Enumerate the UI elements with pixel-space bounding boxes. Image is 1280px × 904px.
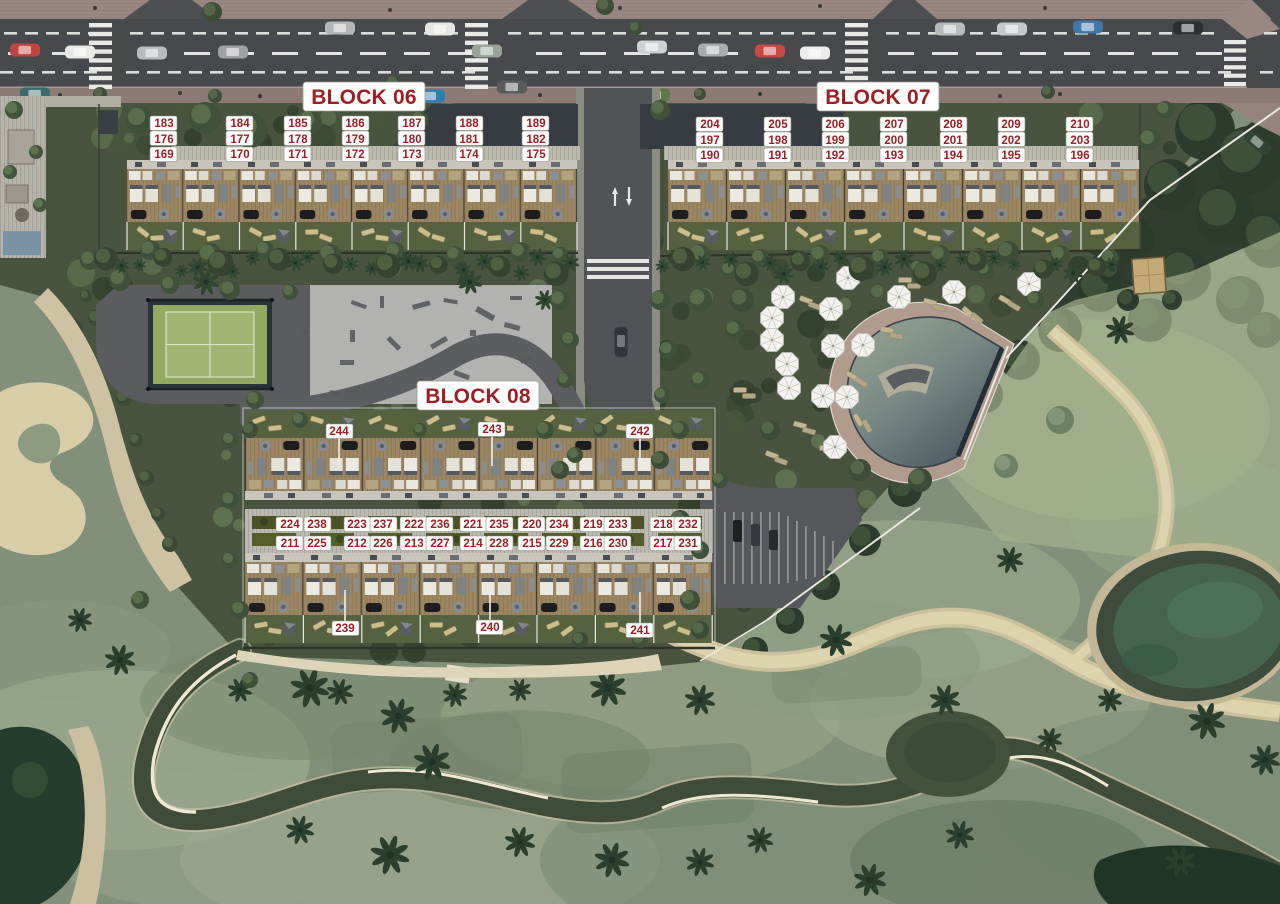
svg-text:193: 193 — [884, 150, 903, 162]
svg-text:186: 186 — [345, 118, 364, 130]
svg-text:241: 241 — [630, 625, 650, 637]
svg-text:221: 221 — [463, 519, 483, 531]
svg-text:243: 243 — [482, 424, 501, 436]
svg-text:206: 206 — [825, 119, 844, 131]
svg-text:214: 214 — [463, 538, 483, 550]
svg-text:220: 220 — [522, 519, 541, 531]
svg-text:207: 207 — [884, 119, 903, 131]
svg-text:223: 223 — [347, 519, 366, 531]
svg-text:235: 235 — [489, 519, 509, 531]
svg-text:242: 242 — [630, 426, 649, 438]
svg-text:196: 196 — [1070, 150, 1089, 162]
svg-text:211: 211 — [281, 538, 300, 550]
svg-text:233: 233 — [608, 519, 627, 531]
svg-text:194: 194 — [943, 150, 963, 162]
svg-text:216: 216 — [583, 538, 602, 550]
svg-text:190: 190 — [700, 150, 719, 162]
svg-text:BLOCK 08: BLOCK 08 — [425, 385, 531, 408]
svg-text:218: 218 — [653, 519, 673, 531]
svg-text:197: 197 — [700, 135, 719, 147]
svg-text:240: 240 — [480, 622, 499, 634]
svg-text:239: 239 — [335, 623, 354, 635]
svg-text:201: 201 — [943, 135, 963, 147]
svg-text:189: 189 — [526, 118, 545, 130]
svg-text:183: 183 — [154, 118, 173, 130]
svg-text:173: 173 — [402, 149, 421, 161]
svg-text:234: 234 — [549, 519, 569, 531]
svg-text:198: 198 — [768, 135, 788, 147]
svg-text:212: 212 — [347, 538, 366, 550]
svg-text:217: 217 — [653, 538, 672, 550]
svg-text:178: 178 — [288, 134, 308, 146]
svg-text:176: 176 — [154, 134, 173, 146]
svg-text:185: 185 — [288, 118, 308, 130]
svg-text:177: 177 — [230, 134, 249, 146]
svg-text:228: 228 — [489, 538, 509, 550]
svg-text:200: 200 — [884, 135, 903, 147]
svg-text:230: 230 — [608, 538, 627, 550]
svg-text:172: 172 — [345, 149, 364, 161]
svg-text:BLOCK 07: BLOCK 07 — [825, 86, 930, 109]
svg-text:237: 237 — [373, 519, 392, 531]
svg-text:236: 236 — [430, 519, 449, 531]
svg-text:209: 209 — [1001, 119, 1020, 131]
svg-text:191: 191 — [768, 150, 788, 162]
svg-text:180: 180 — [402, 134, 421, 146]
svg-text:226: 226 — [373, 538, 392, 550]
svg-text:219: 219 — [583, 519, 602, 531]
svg-text:199: 199 — [825, 135, 844, 147]
svg-text:192: 192 — [825, 150, 844, 162]
svg-text:215: 215 — [522, 538, 542, 550]
svg-text:225: 225 — [307, 538, 327, 550]
svg-text:175: 175 — [526, 149, 546, 161]
svg-text:187: 187 — [402, 118, 421, 130]
svg-text:224: 224 — [280, 519, 300, 531]
svg-text:188: 188 — [459, 118, 479, 130]
svg-text:231: 231 — [678, 538, 698, 550]
svg-text:232: 232 — [678, 519, 697, 531]
svg-text:213: 213 — [404, 538, 423, 550]
svg-text:182: 182 — [526, 134, 545, 146]
svg-text:227: 227 — [430, 538, 449, 550]
svg-text:181: 181 — [459, 134, 479, 146]
svg-text:238: 238 — [307, 519, 327, 531]
svg-text:179: 179 — [345, 134, 364, 146]
svg-text:204: 204 — [700, 119, 720, 131]
svg-text:229: 229 — [549, 538, 568, 550]
svg-text:208: 208 — [943, 119, 963, 131]
svg-text:244: 244 — [329, 426, 349, 438]
svg-text:BLOCK 06: BLOCK 06 — [311, 86, 416, 109]
svg-text:202: 202 — [1001, 135, 1020, 147]
svg-text:195: 195 — [1001, 150, 1021, 162]
svg-text:174: 174 — [459, 149, 479, 161]
svg-text:171: 171 — [288, 149, 308, 161]
svg-text:222: 222 — [404, 519, 423, 531]
svg-text:203: 203 — [1070, 135, 1089, 147]
svg-text:170: 170 — [230, 149, 249, 161]
svg-text:210: 210 — [1070, 119, 1089, 131]
svg-text:184: 184 — [230, 118, 250, 130]
svg-text:205: 205 — [768, 119, 788, 131]
svg-text:169: 169 — [154, 149, 173, 161]
